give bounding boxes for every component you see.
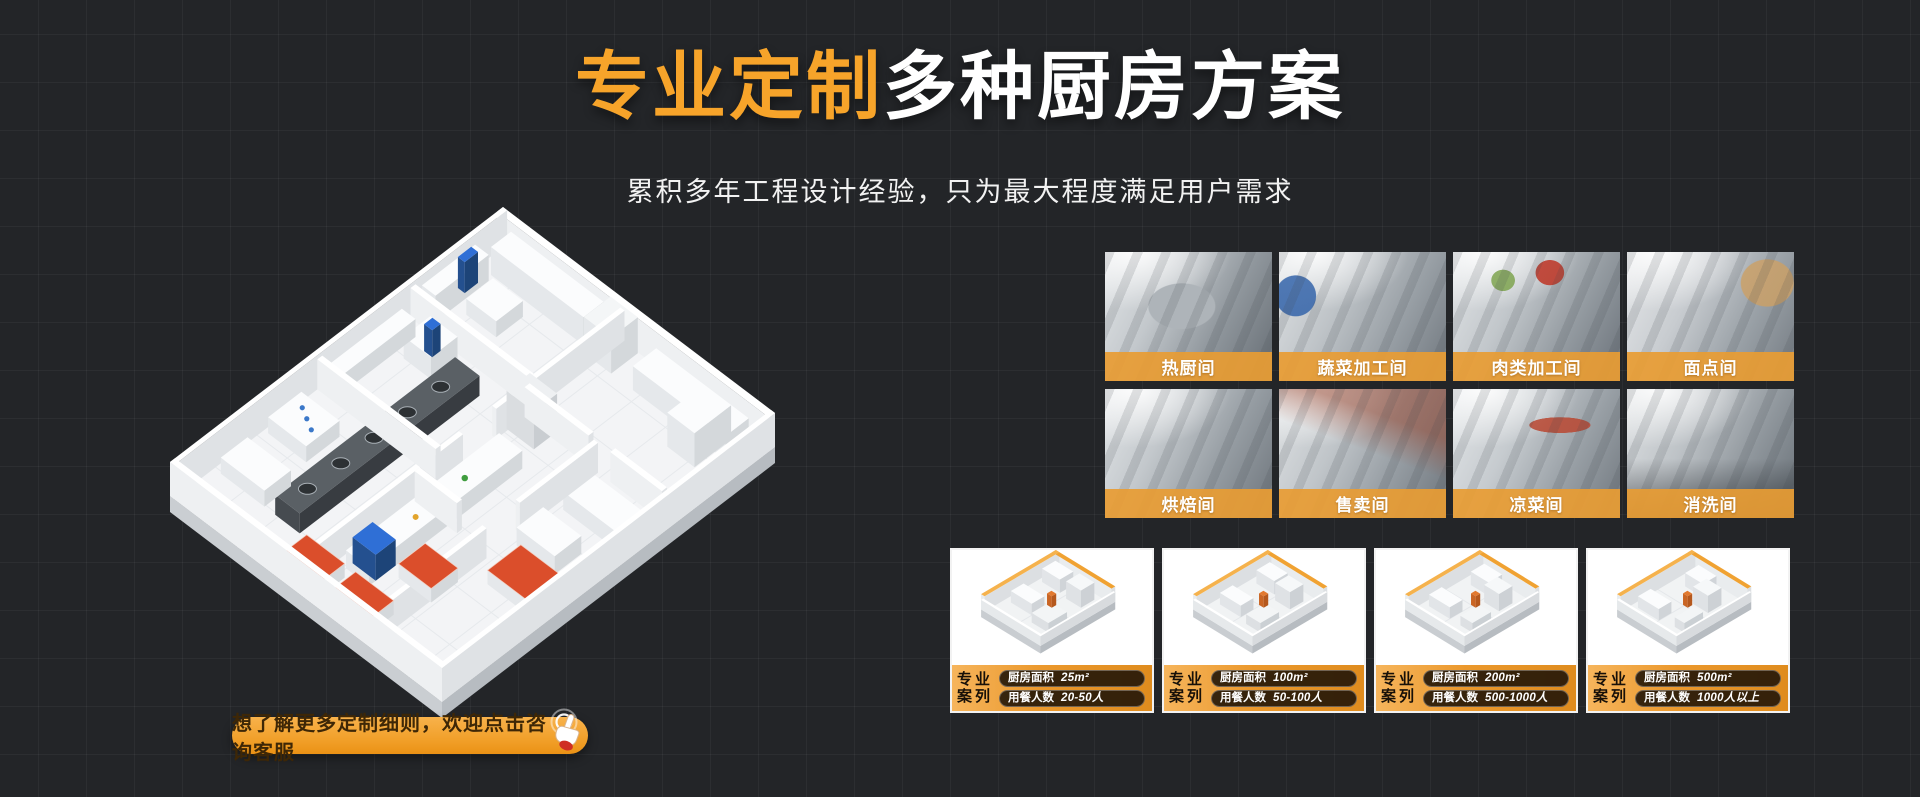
room-label: 热厨间 bbox=[1105, 352, 1272, 381]
kitchen-floorplan-illustration bbox=[135, 205, 795, 727]
case-banner: 专业 案列 厨房面积 100m² 用餐人数 50-100人 bbox=[1164, 665, 1364, 711]
case-diners-value: 50-100人 bbox=[1273, 691, 1322, 706]
case-floorplan-image bbox=[1164, 550, 1364, 665]
case-area-value: 100m² bbox=[1273, 671, 1308, 686]
case-tag-line2: 案列 bbox=[957, 688, 993, 705]
case-area-pill: 厨房面积 200m² bbox=[1423, 670, 1569, 687]
contact-service-button[interactable]: 想了解更多定制细则，欢迎点击咨询客服 bbox=[232, 717, 588, 754]
page-title-highlight: 专业定制 bbox=[575, 45, 883, 128]
room-tile-dishwashing[interactable]: 消洗间 bbox=[1627, 389, 1794, 518]
case-diners-value: 20-50人 bbox=[1061, 691, 1104, 706]
case-area-pill: 厨房面积 100m² bbox=[1211, 670, 1357, 687]
page-title: 专业定制多种厨房方案 bbox=[0, 46, 1920, 127]
case-tag-line1: 专业 bbox=[1593, 671, 1629, 688]
case-diners-pill: 用餐人数 50-100人 bbox=[1211, 690, 1357, 707]
case-tile-100sqm[interactable]: 专业 案列 厨房面积 100m² 用餐人数 50-100人 bbox=[1162, 548, 1366, 713]
case-tile-500sqm[interactable]: 专业 案列 厨房面积 500m² 用餐人数 1000人以上 bbox=[1586, 548, 1790, 713]
room-label: 消洗间 bbox=[1627, 489, 1794, 518]
contact-service-label: 想了解更多定制细则，欢迎点击咨询客服 bbox=[232, 707, 554, 765]
room-tile-baking[interactable]: 烘焙间 bbox=[1105, 389, 1272, 518]
case-tag-line2: 案列 bbox=[1593, 688, 1629, 705]
case-diners-pill: 用餐人数 500-1000人 bbox=[1423, 690, 1569, 707]
case-area-label: 厨房面积 bbox=[1220, 671, 1266, 686]
case-area-value: 500m² bbox=[1697, 671, 1732, 686]
room-label: 面点间 bbox=[1627, 352, 1794, 381]
room-tiles-grid: 热厨间 蔬菜加工间 肉类加工间 面点间 烘焙间 售卖间 凉菜间 消洗间 bbox=[1105, 252, 1794, 518]
case-area-value: 200m² bbox=[1485, 671, 1520, 686]
case-banner: 专业 案列 厨房面积 200m² 用餐人数 500-1000人 bbox=[1376, 665, 1576, 711]
case-floorplan-image bbox=[1588, 550, 1788, 665]
room-tile-pastry[interactable]: 面点间 bbox=[1627, 252, 1794, 381]
room-label: 蔬菜加工间 bbox=[1279, 352, 1446, 381]
case-area-label: 厨房面积 bbox=[1432, 671, 1478, 686]
case-tile-25sqm[interactable]: 专业 案列 厨房面积 25m² 用餐人数 20-50人 bbox=[950, 548, 1154, 713]
room-tile-hot-kitchen[interactable]: 热厨间 bbox=[1105, 252, 1272, 381]
case-diners-value: 500-1000人 bbox=[1485, 691, 1548, 706]
case-area-value: 25m² bbox=[1061, 671, 1089, 686]
case-tag-line2: 案列 bbox=[1381, 688, 1417, 705]
case-floorplan-illustration bbox=[1164, 550, 1364, 665]
case-area-label: 厨房面积 bbox=[1008, 671, 1054, 686]
case-diners-label: 用餐人数 bbox=[1008, 691, 1054, 706]
case-floorplan-illustration bbox=[952, 550, 1152, 665]
hand-click-icon bbox=[540, 705, 592, 761]
case-area-pill: 厨房面积 25m² bbox=[999, 670, 1145, 687]
case-stats: 厨房面积 200m² 用餐人数 500-1000人 bbox=[1423, 670, 1569, 707]
case-tag-line1: 专业 bbox=[957, 671, 993, 688]
case-area-label: 厨房面积 bbox=[1644, 671, 1690, 686]
case-diners-label: 用餐人数 bbox=[1644, 691, 1690, 706]
room-tile-serving[interactable]: 售卖间 bbox=[1279, 389, 1446, 518]
case-tag: 专业 案列 bbox=[1593, 671, 1629, 705]
page-subtitle: 累积多年工程设计经验，只为最大程度满足用户需求 bbox=[0, 170, 1920, 209]
page-title-rest: 多种厨房方案 bbox=[883, 45, 1345, 128]
case-stats: 厨房面积 100m² 用餐人数 50-100人 bbox=[1211, 670, 1357, 707]
promo-banner: 专业定制多种厨房方案 累积多年工程设计经验，只为最大程度满足用户需求 热厨间 蔬… bbox=[0, 0, 1920, 797]
case-diners-pill: 用餐人数 20-50人 bbox=[999, 690, 1145, 707]
case-floorplan-image bbox=[952, 550, 1152, 665]
case-tag: 专业 案列 bbox=[1381, 671, 1417, 705]
room-tile-meat-processing[interactable]: 肉类加工间 bbox=[1453, 252, 1620, 381]
case-tag: 专业 案列 bbox=[957, 671, 993, 705]
case-stats: 厨房面积 500m² 用餐人数 1000人以上 bbox=[1635, 670, 1781, 707]
case-tile-200sqm[interactable]: 专业 案列 厨房面积 200m² 用餐人数 500-1000人 bbox=[1374, 548, 1578, 713]
case-floorplan-illustration bbox=[1376, 550, 1576, 665]
case-tag-line1: 专业 bbox=[1169, 671, 1205, 688]
case-tag-line2: 案列 bbox=[1169, 688, 1205, 705]
case-area-pill: 厨房面积 500m² bbox=[1635, 670, 1781, 687]
room-label: 售卖间 bbox=[1279, 489, 1446, 518]
case-diners-pill: 用餐人数 1000人以上 bbox=[1635, 690, 1781, 707]
case-tag-line1: 专业 bbox=[1381, 671, 1417, 688]
case-tag: 专业 案列 bbox=[1169, 671, 1205, 705]
case-diners-label: 用餐人数 bbox=[1432, 691, 1478, 706]
case-banner: 专业 案列 厨房面积 25m² 用餐人数 20-50人 bbox=[952, 665, 1152, 711]
case-diners-value: 1000人以上 bbox=[1697, 691, 1759, 706]
room-label: 凉菜间 bbox=[1453, 489, 1620, 518]
case-banner: 专业 案列 厨房面积 500m² 用餐人数 1000人以上 bbox=[1588, 665, 1788, 711]
room-tile-vegetable-processing[interactable]: 蔬菜加工间 bbox=[1279, 252, 1446, 381]
case-stats: 厨房面积 25m² 用餐人数 20-50人 bbox=[999, 670, 1145, 707]
room-label: 肉类加工间 bbox=[1453, 352, 1620, 381]
case-tiles-row: 专业 案列 厨房面积 25m² 用餐人数 20-50人 bbox=[950, 548, 1790, 713]
case-floorplan-image bbox=[1376, 550, 1576, 665]
room-label: 烘焙间 bbox=[1105, 489, 1272, 518]
case-floorplan-illustration bbox=[1588, 550, 1788, 665]
case-diners-label: 用餐人数 bbox=[1220, 691, 1266, 706]
room-tile-cold-dishes[interactable]: 凉菜间 bbox=[1453, 389, 1620, 518]
